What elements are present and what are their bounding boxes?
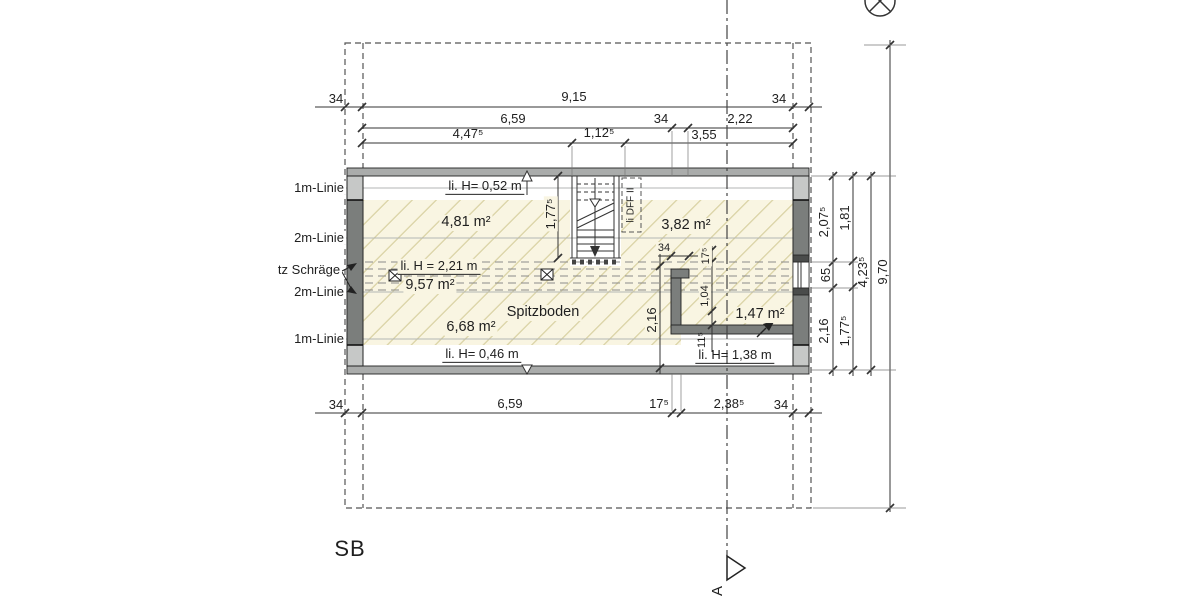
section-letter: A <box>710 586 727 596</box>
dim-label: 65 <box>819 268 833 282</box>
floor-plan-canvas: 34 9,15 34 6,59 34 2,22 4,47⁵ 1,12⁵ 3,55… <box>0 0 1200 600</box>
roof-window-right-wall <box>793 255 809 295</box>
room-area-label: 4,81 m² <box>439 215 492 231</box>
dim-label: 34 <box>772 92 786 106</box>
down-arrow-icon <box>522 365 532 374</box>
roof-window-label: li DFF II <box>626 188 637 223</box>
dim-label: 34 <box>329 398 343 412</box>
dim-label: 1,81 <box>838 205 852 230</box>
room-area-label: 1,47 m² <box>733 307 786 323</box>
dim-label: 2,38⁵ <box>714 397 745 411</box>
clear-height-label: li. H= 1,38 m <box>695 348 774 364</box>
stairwell-area <box>570 176 621 266</box>
dim-label: 2,22 <box>727 112 752 126</box>
dim-label: 1,12⁵ <box>584 126 615 140</box>
dim-label: 3,55 <box>691 128 716 142</box>
survey-mark-icon <box>865 0 895 16</box>
line-label-1m: 1m-Linie <box>292 332 346 346</box>
dim-label: 1,04 <box>699 283 711 308</box>
dim-label: 6,59 <box>500 112 525 126</box>
dim-label: 17⁵ <box>649 397 669 411</box>
dim-label: 34 <box>329 92 343 106</box>
dim-label: 1,77⁵ <box>544 197 558 232</box>
arrow-se-icon <box>347 286 357 294</box>
clear-height-label: li. H= 0,46 m <box>442 347 521 363</box>
dim-label: 34 <box>656 242 672 254</box>
dimension-lines-bottom <box>315 374 822 417</box>
dim-label: 2,16 <box>817 318 831 343</box>
dim-label: 6,59 <box>497 397 522 411</box>
dim-label: 11⁵ <box>696 332 708 348</box>
arrow-ne-icon <box>347 263 357 271</box>
dim-label: 34 <box>774 398 788 412</box>
room-name-label: Spitzboden <box>505 305 582 321</box>
room-area-label: 6,68 m² <box>444 320 497 336</box>
section-arrow-icon <box>727 556 745 580</box>
dim-label: 17⁵ <box>700 246 712 267</box>
clear-height-label: li. H= 0,52 m <box>445 179 524 195</box>
room-area-label: 9,57 m² <box>403 278 456 294</box>
sheet-label: SB <box>334 537 365 561</box>
dim-label: 9,15 <box>561 90 586 104</box>
dim-label: 2,16 <box>645 305 659 334</box>
line-label-2m: 2m-Linie <box>292 231 346 245</box>
line-label-1m: 1m-Linie <box>292 181 346 195</box>
line-label-2m: 2m-Linie <box>292 285 346 299</box>
room-area-label: 3,82 m² <box>659 218 712 234</box>
dim-label: 34 <box>654 112 668 126</box>
dim-label: 1,77⁵ <box>838 316 852 347</box>
dim-label: 4,23⁵ <box>856 257 870 288</box>
line-label-schraege: tz Schräge <box>276 263 342 277</box>
dim-label: 2,07⁵ <box>817 207 831 238</box>
dim-label: 4,47⁵ <box>453 127 484 141</box>
dim-label: 9,70 <box>876 259 890 284</box>
clear-height-label: li. H = 2,21 m <box>398 259 481 275</box>
